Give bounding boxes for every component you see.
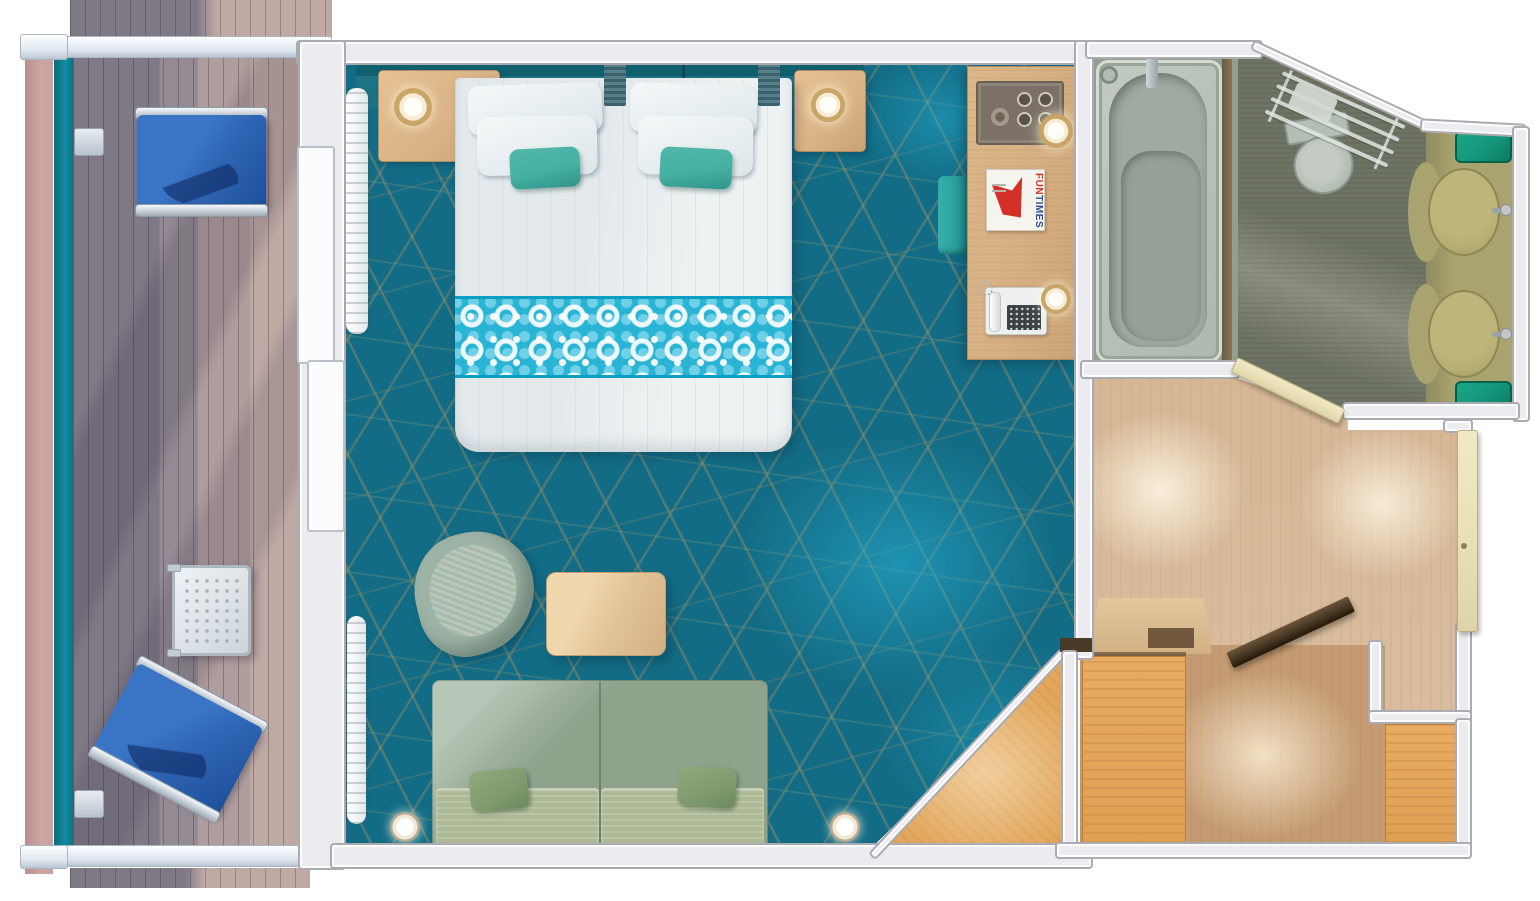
magazine-title-times: TIMES xyxy=(1033,195,1044,228)
wall-bedroom-bath xyxy=(1074,40,1094,660)
desk-stool xyxy=(938,176,970,254)
balcony-partition-wall xyxy=(25,44,53,874)
bed-frame-hinge-left xyxy=(604,58,626,106)
sink-lower xyxy=(1428,290,1500,378)
partition-bracket-lower xyxy=(74,790,104,818)
sofa-pillow-right xyxy=(677,765,738,809)
balcony-table xyxy=(172,565,251,656)
kettle xyxy=(991,108,1009,126)
coffee-table xyxy=(546,572,666,656)
balcony-railing-top-endcap xyxy=(20,34,68,60)
bathtub xyxy=(1096,60,1222,362)
wardrobe-left xyxy=(1082,656,1186,844)
shower-control-dial xyxy=(1100,66,1118,84)
sink-faucet-lower xyxy=(1492,328,1514,342)
neighbor-deck-bottom xyxy=(70,868,310,888)
faucet-knob xyxy=(1500,328,1512,340)
wall-closet-right xyxy=(1455,718,1472,858)
balcony-door-panel-1 xyxy=(297,146,335,364)
table-perforations xyxy=(182,576,241,645)
wall-tub-bottom xyxy=(1080,360,1240,379)
accent-pillow-right xyxy=(659,146,733,190)
cushion-fold xyxy=(160,157,237,206)
partition-bracket-upper xyxy=(74,128,104,156)
faucet-knob xyxy=(1500,204,1512,216)
bed-runner xyxy=(455,296,792,378)
balcony-railing-bottom xyxy=(64,845,332,867)
entry-door xyxy=(1457,430,1478,632)
lounge-chair-cushion xyxy=(137,115,266,209)
nightstand-lamp-left xyxy=(394,88,432,126)
curtain-upper xyxy=(346,88,368,334)
accent-pillow-left xyxy=(509,146,581,190)
wall-bottom xyxy=(330,843,1093,869)
phone-keypad xyxy=(1007,305,1041,330)
bed-frame-hinge-right xyxy=(758,58,780,106)
balcony-teal-stripe xyxy=(54,52,73,852)
towel xyxy=(1287,82,1339,125)
cup xyxy=(1017,92,1032,107)
balcony xyxy=(0,0,345,901)
armchair-seat xyxy=(420,536,527,645)
phone-handset xyxy=(989,292,1001,332)
wall-bath-top xyxy=(1085,40,1263,59)
vanity-desk: FUNTIMES xyxy=(967,66,1075,360)
wall-vanity-bottom xyxy=(1342,402,1520,420)
cabinet-recess xyxy=(1148,628,1194,648)
bathtub-basin-deep xyxy=(1121,151,1201,341)
ceiling-light-right xyxy=(830,812,860,842)
sink-faucet-upper xyxy=(1492,204,1514,218)
wall-bath-right xyxy=(1512,126,1530,422)
door-handle xyxy=(1461,543,1467,549)
lounge-chair-1 xyxy=(133,107,270,217)
wall-closet-left xyxy=(1061,650,1078,846)
lounge-chair-frame-bar xyxy=(135,204,268,217)
desk-lamp-lower xyxy=(1041,284,1071,314)
magazine-text-line xyxy=(992,190,1006,192)
wall-top xyxy=(296,40,1093,65)
neighbor-deck-top xyxy=(70,0,332,38)
hall-cabinet xyxy=(1090,598,1212,654)
wall-closet-bottom xyxy=(1055,842,1472,859)
sink-upper xyxy=(1428,168,1500,256)
curtain-lower xyxy=(347,616,366,824)
bath-divider-trim xyxy=(1222,56,1232,364)
table-corner-cap xyxy=(167,649,181,657)
wardrobe-right xyxy=(1385,724,1457,844)
tub-faucet xyxy=(1146,58,1158,88)
magazine-text-line xyxy=(992,184,1006,186)
balcony-railing-top xyxy=(64,36,332,58)
telephone xyxy=(985,287,1047,335)
table-corner-cap xyxy=(167,564,181,572)
balcony-door-panel-2 xyxy=(307,360,345,532)
desk-lamp-upper xyxy=(1039,114,1073,148)
nightstand-lamp-right xyxy=(811,88,845,122)
funtimes-magazine: FUNTIMES xyxy=(986,169,1045,231)
sofa-pillow-left xyxy=(468,768,529,813)
cup xyxy=(1017,112,1032,127)
magazine-title-fun: FUN xyxy=(1033,173,1044,195)
magazine-title: FUNTIMES xyxy=(1033,173,1043,227)
balcony-railing-bottom-endcap xyxy=(20,845,68,869)
wall-nook-vertical xyxy=(1368,640,1383,720)
ceiling-light-left xyxy=(390,812,420,842)
cup xyxy=(1038,92,1053,107)
stateroom-floorplan: FUNTIMES xyxy=(0,0,1540,901)
